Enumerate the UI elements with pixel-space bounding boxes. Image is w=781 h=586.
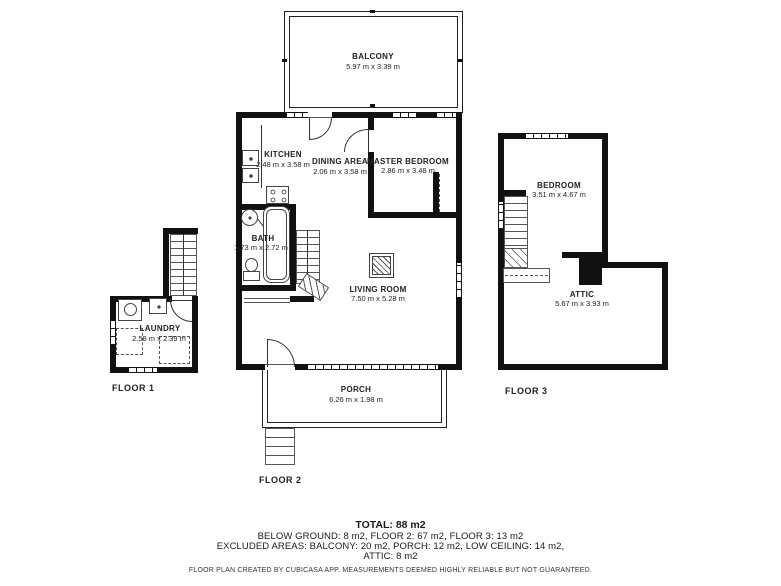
floor3-label: FLOOR 3 [505,386,548,396]
window [437,112,456,118]
balcony-label: BALCONY [352,52,394,61]
wall [236,112,462,118]
wall [498,364,668,370]
staircase-winder [504,248,528,268]
storage-dashed-line [505,275,548,276]
door-arc [310,118,332,140]
summary-disclaimer: FLOOR PLAN CREATED BY CUBICASA APP. MEAS… [0,567,781,574]
door-leaf [309,118,310,140]
fireplace-icon [369,253,394,278]
attic-label: ATTIC [570,290,594,299]
bath-label: BATH [252,234,275,243]
living-room-label: LIVING ROOM [349,285,406,294]
porch-steps [265,428,295,465]
low-ceiling-storage [503,268,550,283]
washing-machine [118,299,142,321]
staircase [504,196,528,250]
washbasin [241,209,258,226]
porch-label: PORCH [341,385,371,394]
chimney [579,258,602,285]
railing-post [370,104,375,107]
door-leaf [170,300,192,301]
door-leaf [368,129,369,152]
railing-post [458,59,463,62]
wall [368,212,456,218]
wall [192,296,198,373]
master-bedroom-dims: 2.86 m x 3.48 m [381,166,435,175]
master-bedroom-label: MASTER BEDROOM [367,157,449,166]
window [456,263,462,297]
door-arc [170,300,192,322]
door-arc [267,339,295,367]
staircase-centerline [183,234,184,296]
floor2-label: FLOOR 2 [259,475,302,485]
wall [163,228,169,298]
summary-total: TOTAL: 88 m2 [0,519,781,531]
kitchen-dims: 2.48 m x 3.58 m [256,160,310,169]
bedroom-label: BEDROOM [537,181,581,190]
window [526,133,568,139]
summary-excluded-2: ATTIC: 8 m2 [0,551,781,562]
toilet [243,271,260,281]
railing-post [282,59,287,62]
bedroom-dims: 3.51 m x 4.67 m [532,190,586,199]
wall [456,112,462,370]
floor1-label: FLOOR 1 [112,383,155,393]
window [393,112,417,118]
wall [368,112,374,130]
railing-post [370,10,375,13]
laundry-sink [149,298,167,314]
window [287,112,308,118]
porch-dims: 6.26 m x 1.98 m [329,395,383,404]
floor-plan-canvas: BALCONY 5.97 m x 3.39 m [0,0,781,586]
wall [236,285,296,291]
dining-area-dims: 2.06 m x 3.58 m [313,167,367,176]
dining-area-label: DINING AREA [312,157,368,166]
window [129,367,157,373]
wall [290,296,314,302]
door-arc [344,129,368,152]
door-leaf [267,339,268,367]
washing-machine-drum [124,303,137,316]
bath-dims: 1.73 m x 2.72 m [234,243,288,252]
attic-dims: 5.67 m x 3.93 m [555,299,609,308]
laundry-dims: 2.58 m x 2.39 m [132,334,186,343]
kitchen-sink [242,168,259,183]
living-room-dims: 7.50 m x 5.28 m [351,294,405,303]
fireplace-hatch [372,256,391,275]
wall [602,262,668,268]
counter-edge [261,125,262,188]
stove-icon [266,186,289,204]
toilet-bowl [245,258,258,272]
closet [439,174,456,212]
wall [662,262,668,370]
laundry-label: LAUNDRY [140,324,181,333]
wall [602,133,608,268]
kitchen-label: KITCHEN [264,150,302,159]
railing [244,298,290,303]
balcony-dims: 5.97 m x 3.39 m [346,62,400,71]
